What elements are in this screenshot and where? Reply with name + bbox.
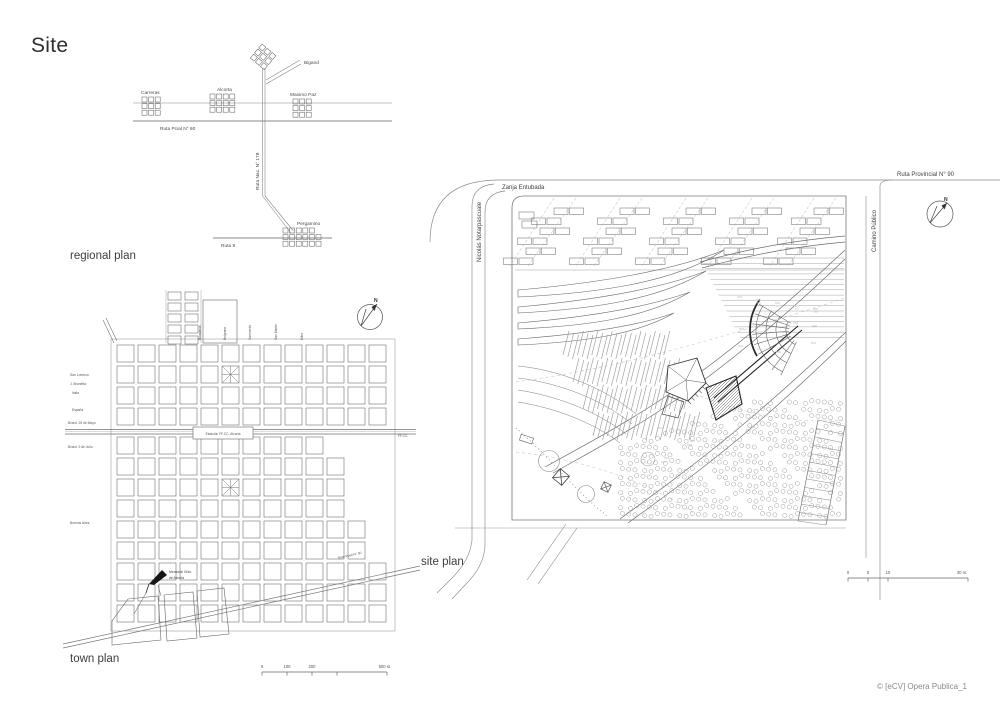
site-scale-bar	[848, 578, 968, 582]
orchard-trees	[619, 399, 843, 519]
street-label: Rivadavia	[198, 325, 202, 340]
field-strips	[798, 420, 845, 525]
street-label: Belgrano	[223, 327, 227, 340]
planting-strips	[518, 250, 724, 345]
road-label-diagonal: Ruta Pcial N° 90	[337, 551, 362, 560]
north-arrow-icon: N	[927, 197, 953, 227]
caption-town-plan: town plan	[70, 653, 119, 665]
plans-canvas: Carreras Alcorta Maximo Paz Bigand Perga…	[0, 0, 1000, 707]
road-label-ruta-provincial: Ruta Provincial N° 90	[897, 172, 955, 178]
regional-plan: Carreras Alcorta Maximo Paz Bigand Perga…	[70, 44, 392, 262]
scale-tick: 0	[847, 570, 850, 575]
scale-tick: 500 m.	[379, 664, 392, 669]
scale-tick: 30 m.	[957, 570, 967, 575]
street-label: Buenos Aires	[70, 521, 90, 525]
north-label: N	[374, 298, 378, 304]
town-label-bigand: Bigand	[304, 60, 319, 66]
memorial-marker	[134, 570, 167, 614]
road-label-zanja: Zanja Entubada	[502, 185, 545, 191]
street-label: Sarmiento	[248, 325, 252, 340]
scale-tick: 100	[284, 664, 292, 669]
memorial-label: Memorial Grito	[169, 570, 191, 574]
railway-label: FF.CC.	[398, 434, 408, 438]
street-label: Italia	[72, 391, 79, 395]
town-plan: Estación FF.CC. Alcorta FF.CC. San Loren…	[63, 290, 420, 676]
road-label-nicolas: Nicolás Notarpascuale	[477, 201, 483, 262]
garden-features	[516, 428, 655, 517]
street-label: J. Brunetta	[70, 382, 86, 386]
regional-town-grids	[142, 44, 321, 246]
road-label-ruta-8: Ruta 8	[221, 243, 235, 249]
street-label: San Martín	[274, 324, 278, 340]
south-parcels	[112, 585, 229, 645]
town-label-carreras: Carreras	[141, 90, 160, 96]
regional-roads	[133, 60, 392, 238]
street-label: Bvard. 25 de Mayo	[68, 421, 96, 425]
street-label: Bvard. 9 de Julio	[68, 445, 93, 449]
caption-regional-plan: regional plan	[70, 250, 136, 262]
road-label-camino: Camino Público	[872, 209, 878, 252]
memorial-label: de Alcorta	[169, 576, 184, 580]
road-label-ruta-nac-178: Ruta Nac. N° 178	[255, 152, 261, 190]
site-plan: Zanja Entubada Nicolás Notarpascuale Rut…	[421, 172, 1000, 600]
town-scale-bar	[262, 672, 387, 676]
scale-tick: 0	[261, 664, 264, 669]
street-label: Mitre	[300, 333, 304, 340]
street-label: España	[72, 408, 83, 412]
station-label: Estación FF.CC. Alcorta	[206, 432, 241, 436]
road-label-ruta-pcial-90: Ruta Pcial N° 90	[160, 126, 196, 132]
plantation-rows	[504, 198, 844, 266]
memorial-buildings	[662, 326, 802, 420]
scale-tick: 10	[886, 570, 891, 575]
north-label: N	[944, 197, 948, 203]
town-label-pergamino: Pergamino	[297, 221, 321, 227]
drawing-sheet: Site © [eCV] Opera Publica_1 Carreras	[0, 0, 1000, 707]
town-south-roads	[63, 318, 420, 648]
town-label-maximo-paz: Maximo Paz	[290, 92, 317, 98]
town-label-alcorta: Alcorta	[217, 87, 232, 93]
scale-tick: 200	[309, 664, 317, 669]
north-arrow-icon: N	[358, 298, 383, 330]
scale-tick: 5	[867, 570, 870, 575]
caption-site-plan: site plan	[421, 556, 464, 568]
street-label: San Lorenzo	[70, 373, 89, 377]
